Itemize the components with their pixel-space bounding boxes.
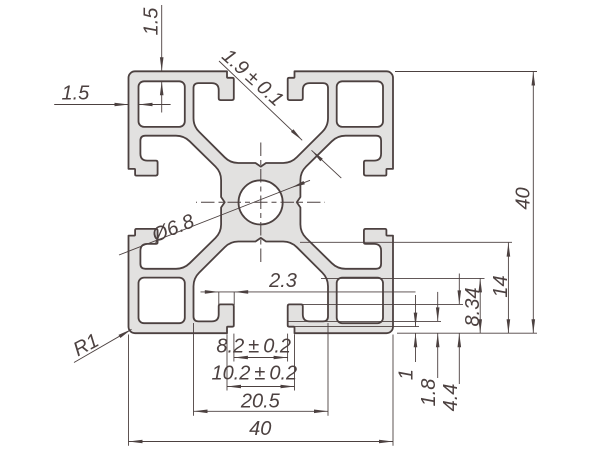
svg-text:14: 14 <box>490 275 512 297</box>
svg-text:1.8: 1.8 <box>418 379 440 407</box>
svg-text:R1: R1 <box>70 330 103 361</box>
svg-text:20.5: 20.5 <box>240 391 281 413</box>
svg-text:10.2 ± 0.2: 10.2 ± 0.2 <box>211 362 297 384</box>
svg-text:Ø6.8: Ø6.8 <box>148 210 197 247</box>
svg-text:1: 1 <box>395 369 417 380</box>
svg-text:2.3: 2.3 <box>268 270 297 292</box>
svg-text:1.5: 1.5 <box>141 7 163 36</box>
svg-text:40: 40 <box>512 187 534 209</box>
svg-text:4.4: 4.4 <box>440 384 462 412</box>
svg-text:8.34: 8.34 <box>462 288 484 327</box>
svg-text:1.5: 1.5 <box>61 83 90 105</box>
svg-text:40: 40 <box>249 418 271 440</box>
svg-text:8.2 ± 0.2: 8.2 ± 0.2 <box>216 336 291 358</box>
